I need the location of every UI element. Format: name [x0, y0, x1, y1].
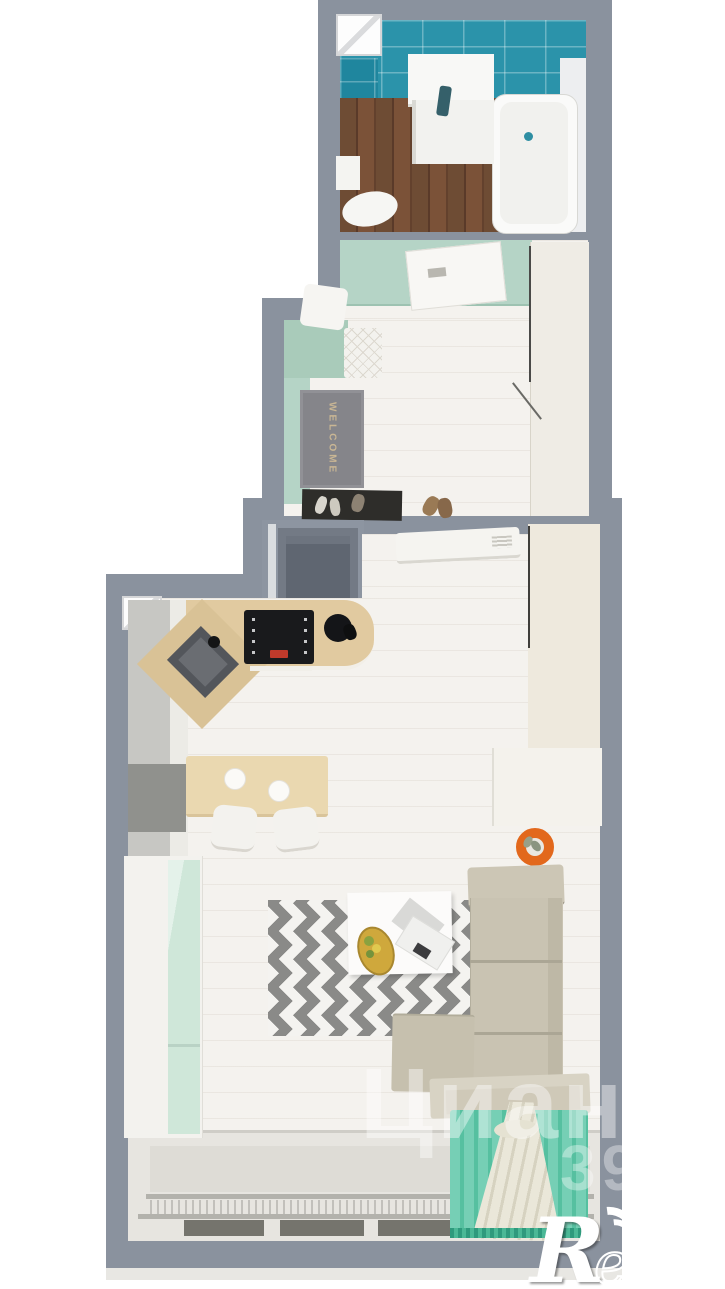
bar-stool-2: [272, 805, 321, 853]
plate-2: [268, 780, 290, 802]
tall-cabinet-seam: [168, 1044, 200, 1047]
living-wardrobe: [528, 524, 600, 760]
entry-door-top: [286, 536, 350, 600]
restate-logo-rest: estate: [594, 1234, 725, 1289]
cooktop-controls-right: [304, 618, 307, 621]
welcome-mat-label: WELCOME: [327, 402, 338, 475]
fruit-3: [366, 950, 374, 958]
welcome-mat: WELCOME: [300, 390, 364, 488]
floor-plan-render: WELCOME: [0, 0, 725, 1289]
living-lowboard: [492, 748, 602, 826]
corner-faucet: [208, 636, 220, 648]
plate-1: [224, 768, 246, 790]
toilet-tank: [336, 156, 360, 190]
sofa-backrest: [548, 898, 562, 1100]
entry-niche-frame: [268, 524, 276, 598]
fridge: [128, 764, 186, 832]
counter-drawer-line: [250, 666, 312, 671]
radiator-3: [378, 1220, 458, 1236]
radiator-1: [184, 1220, 264, 1236]
hallway-cushion: [299, 283, 348, 331]
sink-vanity-base: [412, 100, 494, 164]
wardrobe-door-gap: [529, 246, 531, 382]
bathtub-drain: [524, 132, 533, 141]
radiator-2: [280, 1220, 364, 1236]
door-sign: [428, 267, 447, 278]
tall-cabinet-mint-front: [168, 860, 200, 1134]
bathroom-window: [336, 14, 382, 56]
sofa-seam-2: [470, 1032, 562, 1035]
cooktop-controls-left: [252, 618, 255, 621]
sofa-seam-1: [470, 960, 562, 963]
living-wardrobe-gap: [528, 526, 530, 648]
hallway-wardrobe: [530, 242, 589, 516]
ac-vents: [492, 535, 513, 548]
cooktop-display: [270, 650, 288, 658]
restate-logo: R estate: [520, 1198, 725, 1289]
bathroom-door-open: [405, 241, 507, 311]
bathtub-basin: [500, 102, 568, 224]
tufted-bench: [344, 328, 382, 378]
bar-stool-1: [210, 804, 258, 853]
